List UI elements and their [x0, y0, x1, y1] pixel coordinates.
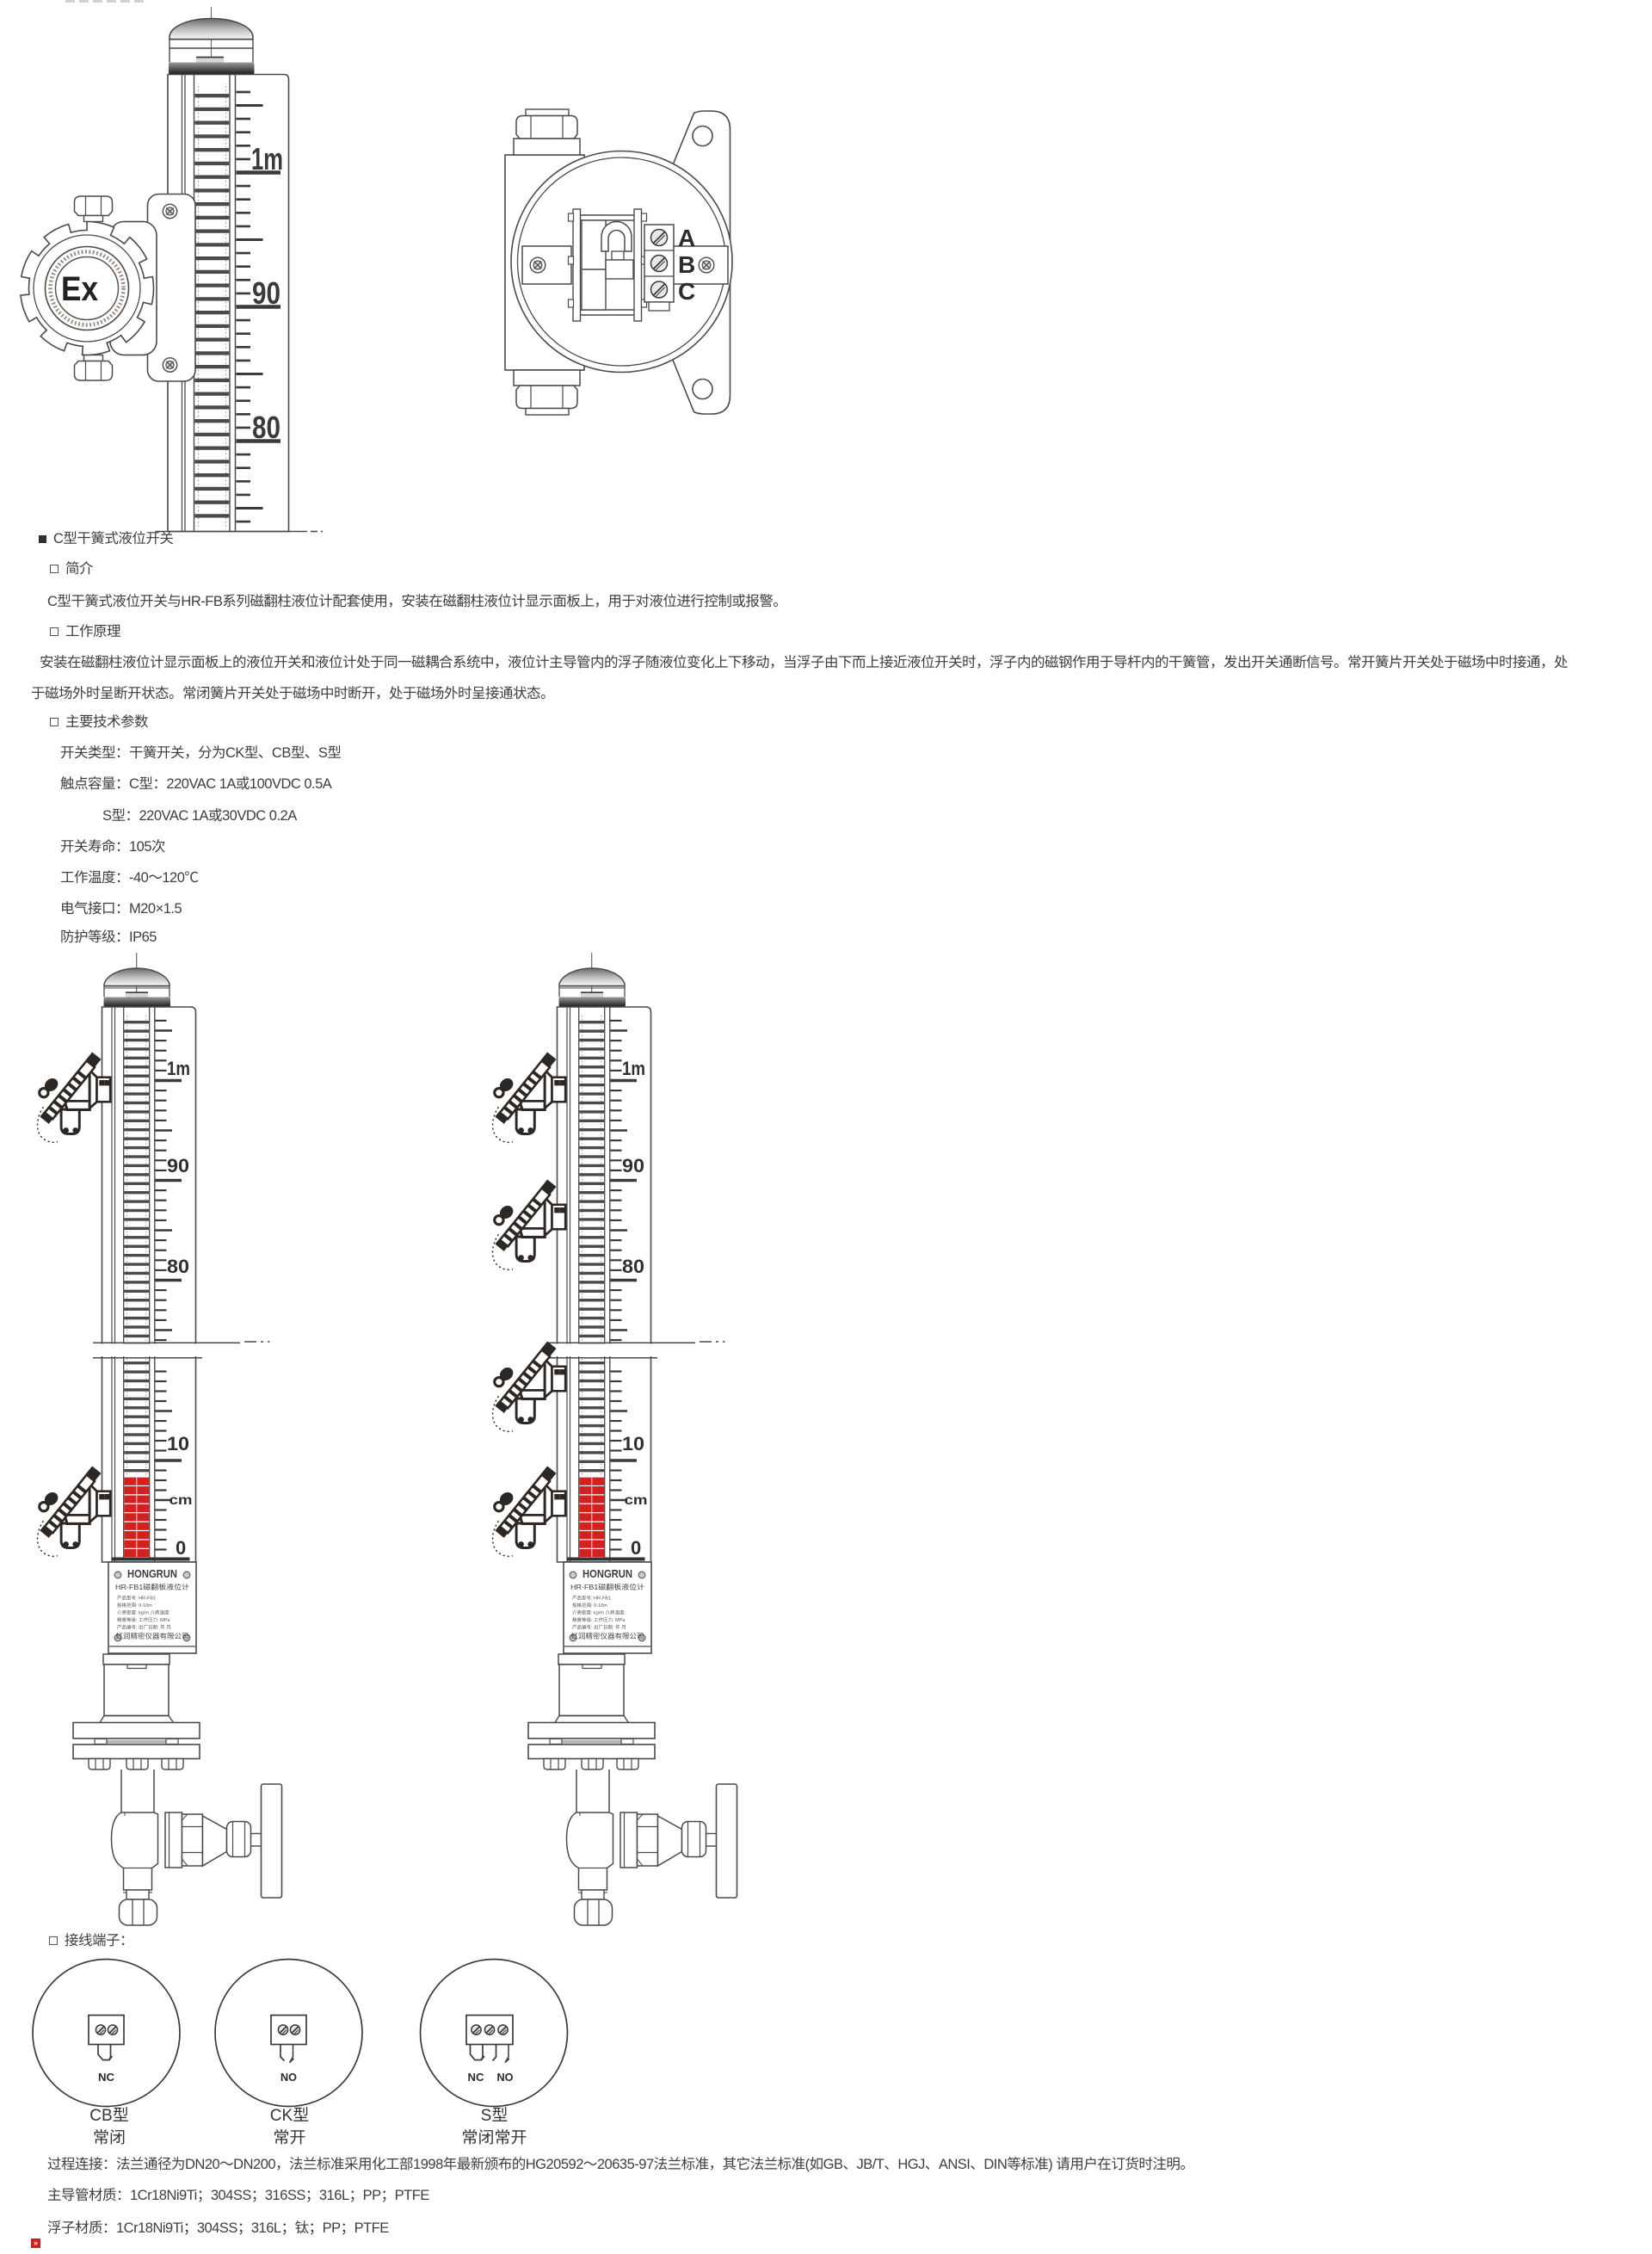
svg-text:90: 90: [252, 275, 280, 311]
svg-text:NC: NC: [468, 2071, 485, 2084]
svg-text:S型: S型: [481, 2107, 509, 2125]
svg-text:常闭: 常闭: [93, 2129, 126, 2147]
svg-text:常闭常开: 常闭常开: [461, 2129, 527, 2147]
svg-text:NO: NO: [497, 2071, 514, 2084]
svg-text:A: A: [678, 225, 695, 251]
svg-text:NC: NC: [98, 2071, 115, 2084]
svg-text:CK型: CK型: [270, 2107, 309, 2125]
svg-text:CB型: CB型: [89, 2107, 128, 2125]
svg-text:80: 80: [252, 410, 280, 445]
svg-text:常开: 常开: [273, 2129, 305, 2147]
svg-text:Ex: Ex: [61, 270, 98, 308]
svg-text:C: C: [678, 278, 695, 305]
svg-text:B: B: [678, 251, 695, 278]
svg-text:1m: 1m: [251, 141, 283, 176]
svg-text:NO: NO: [280, 2071, 297, 2084]
